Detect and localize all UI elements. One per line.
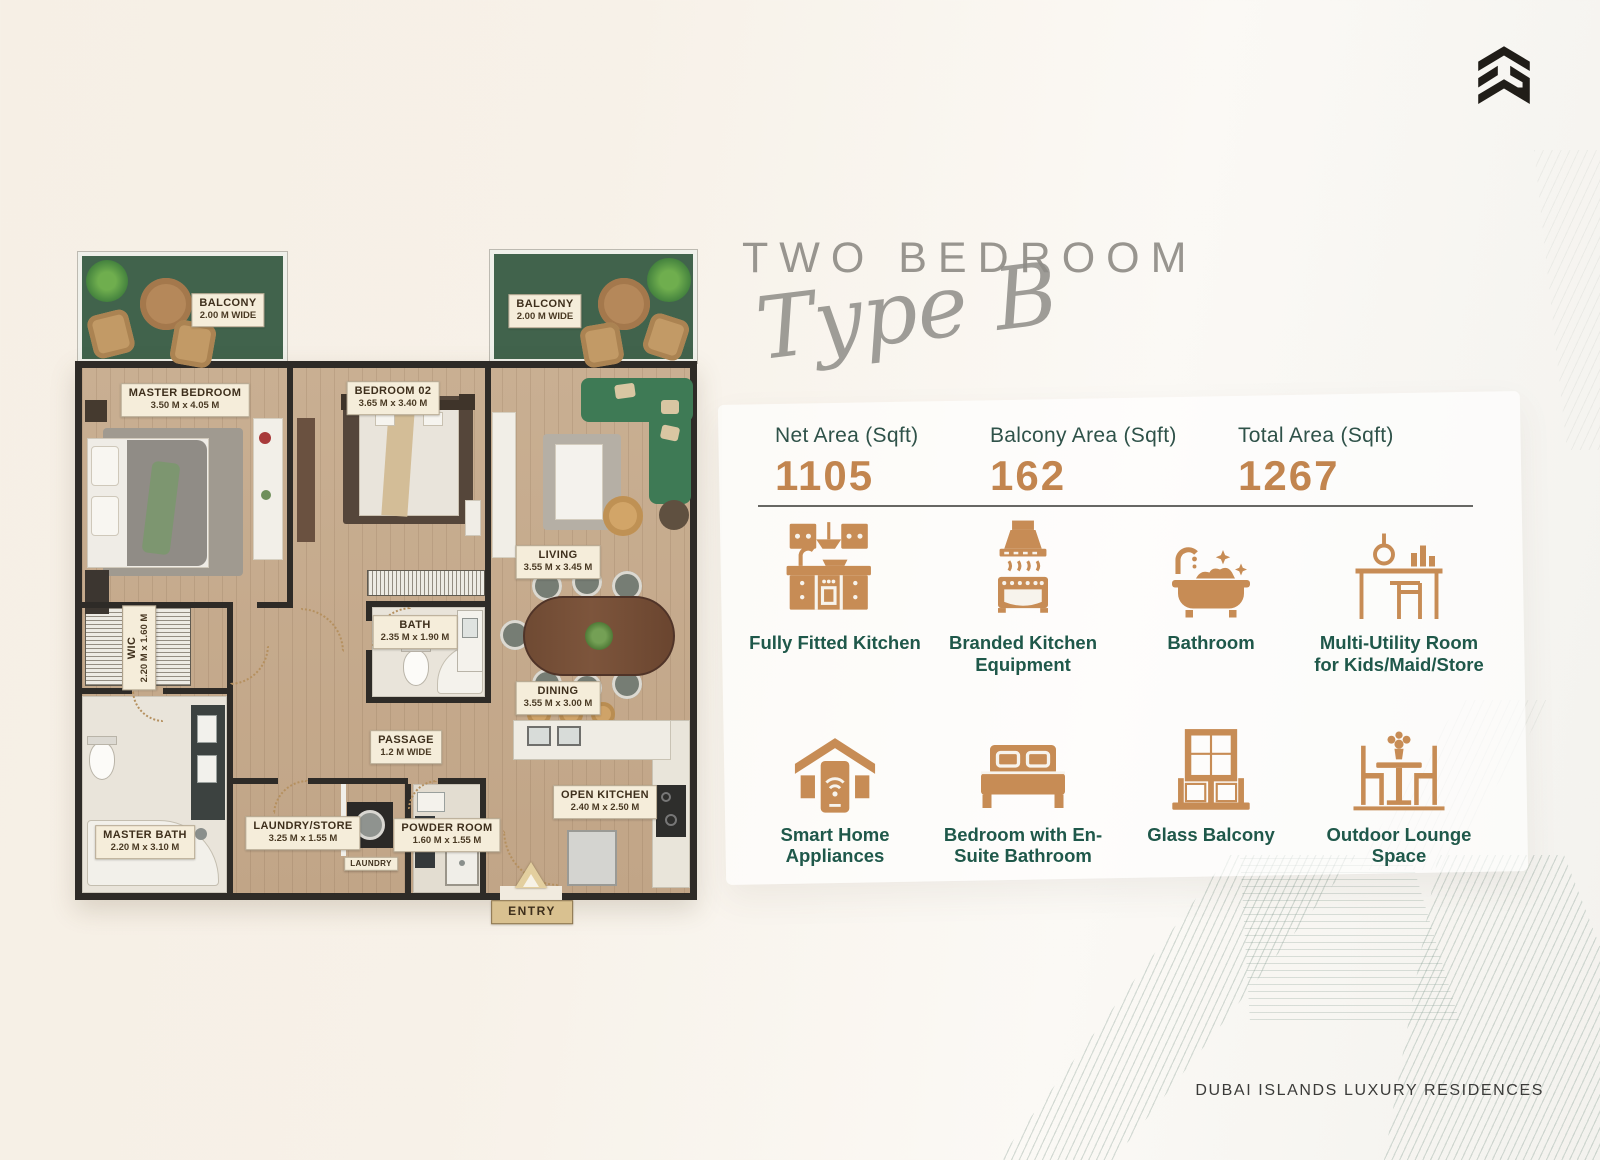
feature-label: Smart Home Appliances: [742, 824, 928, 868]
brand-chevron-logo-icon: [1476, 40, 1532, 106]
toilet-tank: [87, 736, 117, 745]
feature-branded-kitchen-equipment: Branded Kitchen Equipment: [930, 510, 1116, 676]
pillow: [91, 496, 119, 536]
table-plant: [585, 622, 613, 650]
burner: [665, 814, 677, 826]
sink: [197, 715, 217, 743]
cushion: [661, 400, 679, 414]
sink: [527, 726, 551, 746]
stat-total-area: Total Area (Sqft) 1267: [1238, 424, 1453, 500]
flowers: [259, 432, 271, 444]
nightstand: [85, 400, 107, 422]
burner: [661, 792, 671, 802]
feature-outdoor-lounge: Outdoor Lounge Space: [1306, 702, 1492, 868]
room-label-laundry-store: LAUNDRY/STORE 3.25 M x 1.55 M: [245, 816, 360, 850]
wall: [163, 688, 227, 694]
area-stats: Net Area (Sqft) 1105 Balcony Area (Sqft)…: [775, 424, 1453, 500]
wall: [366, 601, 372, 621]
wic-wardrobe: [155, 606, 191, 686]
room-label-passage: PASSAGE 1.2 M WIDE: [370, 730, 442, 764]
bathtub-icon: [1118, 510, 1304, 622]
room-label-dining: DINING 3.55 M x 3.00 M: [516, 681, 601, 715]
feature-glass-balcony: Glass Balcony: [1118, 702, 1304, 868]
room-label-powder-room: POWDER ROOM 1.60 M x 1.55 M: [393, 818, 500, 852]
wic-wardrobe: [85, 606, 123, 686]
room-label-entry: ENTRY: [491, 900, 573, 924]
feature-label: Bathroom: [1118, 632, 1304, 654]
feature-grid: Fully Fitted Kitchen: [742, 510, 1492, 867]
feature-label: Glass Balcony: [1118, 824, 1304, 846]
armchair: [603, 496, 643, 536]
side-unit: [465, 500, 481, 536]
stat-label: Net Area (Sqft): [775, 424, 990, 448]
fridge: [567, 830, 617, 886]
wall: [366, 650, 372, 703]
wall: [438, 778, 483, 784]
oven-hood-icon: [930, 510, 1116, 622]
stat-net-area: Net Area (Sqft) 1105: [775, 424, 990, 500]
toilet: [89, 742, 115, 780]
entry-arrow-inner: [523, 874, 539, 887]
drain: [459, 860, 465, 866]
feature-bedroom-ensuite: Bedroom with En-Suite Bathroom: [930, 702, 1116, 868]
cooktop: [656, 785, 686, 837]
wall: [485, 368, 491, 608]
feature-fully-fitted-kitchen: Fully Fitted Kitchen: [742, 510, 928, 676]
stat-label: Balcony Area (Sqft): [990, 424, 1238, 448]
stat-balcony-area: Balcony Area (Sqft) 162: [990, 424, 1238, 500]
bg-pattern-horizontal: [1100, 855, 1600, 1160]
feature-bathroom: Bathroom: [1118, 510, 1304, 676]
stat-value: 162: [990, 452, 1238, 500]
entry-opening: [500, 886, 562, 900]
tub-faucet: [195, 828, 207, 840]
room-label-laundry: LAUNDRY: [344, 857, 398, 871]
stat-value: 1267: [1238, 452, 1453, 500]
plant: [86, 260, 128, 302]
side-table: [659, 500, 689, 530]
balcony-chair: [579, 321, 626, 369]
room-label-wic: WIC 2.20 M x 1.60 M: [122, 606, 156, 691]
toilet: [403, 650, 429, 686]
nightstand: [459, 394, 475, 410]
room-label-bath: BATH 2.35 M x 1.90 M: [373, 615, 458, 649]
kitchen-cabinets-icon: [742, 510, 928, 622]
room-label-bedroom-02: BEDROOM 02 3.65 M x 3.40 M: [347, 381, 440, 415]
feature-smart-home: Smart Home Appliances: [742, 702, 928, 868]
room-label-master-bedroom: MASTER BEDROOM 3.50 M x 4.05 M: [121, 383, 250, 417]
wall: [287, 368, 293, 604]
balcony-chair: [85, 308, 136, 361]
stat-value: 1105: [775, 452, 990, 500]
sink: [197, 755, 217, 783]
wall: [485, 608, 491, 703]
sink: [557, 726, 581, 746]
wall: [233, 778, 278, 784]
stats-divider: [758, 505, 1473, 507]
footer-text: DUBAI ISLANDS LUXURY RESIDENCES: [1195, 1082, 1544, 1100]
sink: [462, 618, 478, 638]
bed-icon: [930, 702, 1116, 814]
room-label-balcony-right: BALCONY 2.00 M WIDE: [508, 294, 581, 328]
tv-cabinet: [297, 418, 315, 542]
pillow: [91, 446, 119, 486]
plant-small: [261, 490, 271, 500]
glass-balcony-icon: [1118, 702, 1304, 814]
outdoor-lounge-icon: [1306, 702, 1492, 814]
feature-label: Multi-Utility Room for Kids/Maid/Store: [1306, 632, 1492, 676]
plant: [647, 258, 691, 302]
floor-plan: BALCONY 2.00 M WIDE BALCONY 2.00 M WIDE …: [75, 250, 700, 940]
feature-label: Bedroom with En-Suite Bathroom: [930, 824, 1116, 868]
bg-pattern-diagonal-2: [1240, 855, 1600, 1160]
sofa-right: [649, 378, 691, 504]
bedroom02-wardrobe: [367, 570, 485, 596]
feature-label: Branded Kitchen Equipment: [930, 632, 1116, 676]
utility-desk-icon: [1306, 510, 1492, 622]
feature-multi-utility-room: Multi-Utility Room for Kids/Maid/Store: [1306, 510, 1492, 676]
bg-pattern-diagonal-1: [960, 855, 1600, 1160]
cushion: [614, 383, 636, 400]
feature-label: Outdoor Lounge Space: [1306, 824, 1492, 868]
smart-home-icon: [742, 702, 928, 814]
stat-label: Total Area (Sqft): [1238, 424, 1453, 448]
wall: [308, 778, 408, 784]
coffee-table: [555, 444, 603, 520]
room-label-master-bath: MASTER BATH 2.20 M x 3.10 M: [95, 825, 195, 859]
room-label-open-kitchen: OPEN KITCHEN 2.40 M x 2.50 M: [553, 785, 657, 819]
feature-label: Fully Fitted Kitchen: [742, 632, 928, 654]
balcony-chair: [640, 311, 691, 363]
wall: [366, 601, 491, 607]
room-label-balcony-left: BALCONY 2.00 M WIDE: [191, 293, 264, 327]
wall: [366, 697, 491, 703]
room-label-living: LIVING 3.55 M x 3.45 M: [516, 545, 601, 579]
wall: [257, 602, 293, 608]
tv-console: [492, 412, 516, 558]
